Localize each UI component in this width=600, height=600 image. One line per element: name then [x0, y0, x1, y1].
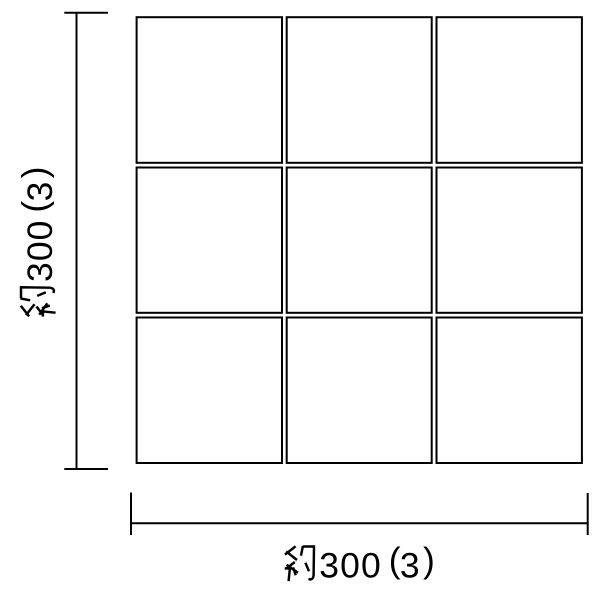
svg-text:): )	[15, 166, 55, 178]
svg-text:3: 3	[20, 182, 60, 202]
svg-text:300: 300	[20, 219, 60, 282]
svg-text:(: (	[389, 540, 401, 580]
svg-text:): )	[423, 540, 435, 580]
svg-text:(: (	[15, 201, 55, 213]
svg-text:3: 3	[400, 546, 420, 586]
svg-text:300: 300	[319, 546, 382, 586]
